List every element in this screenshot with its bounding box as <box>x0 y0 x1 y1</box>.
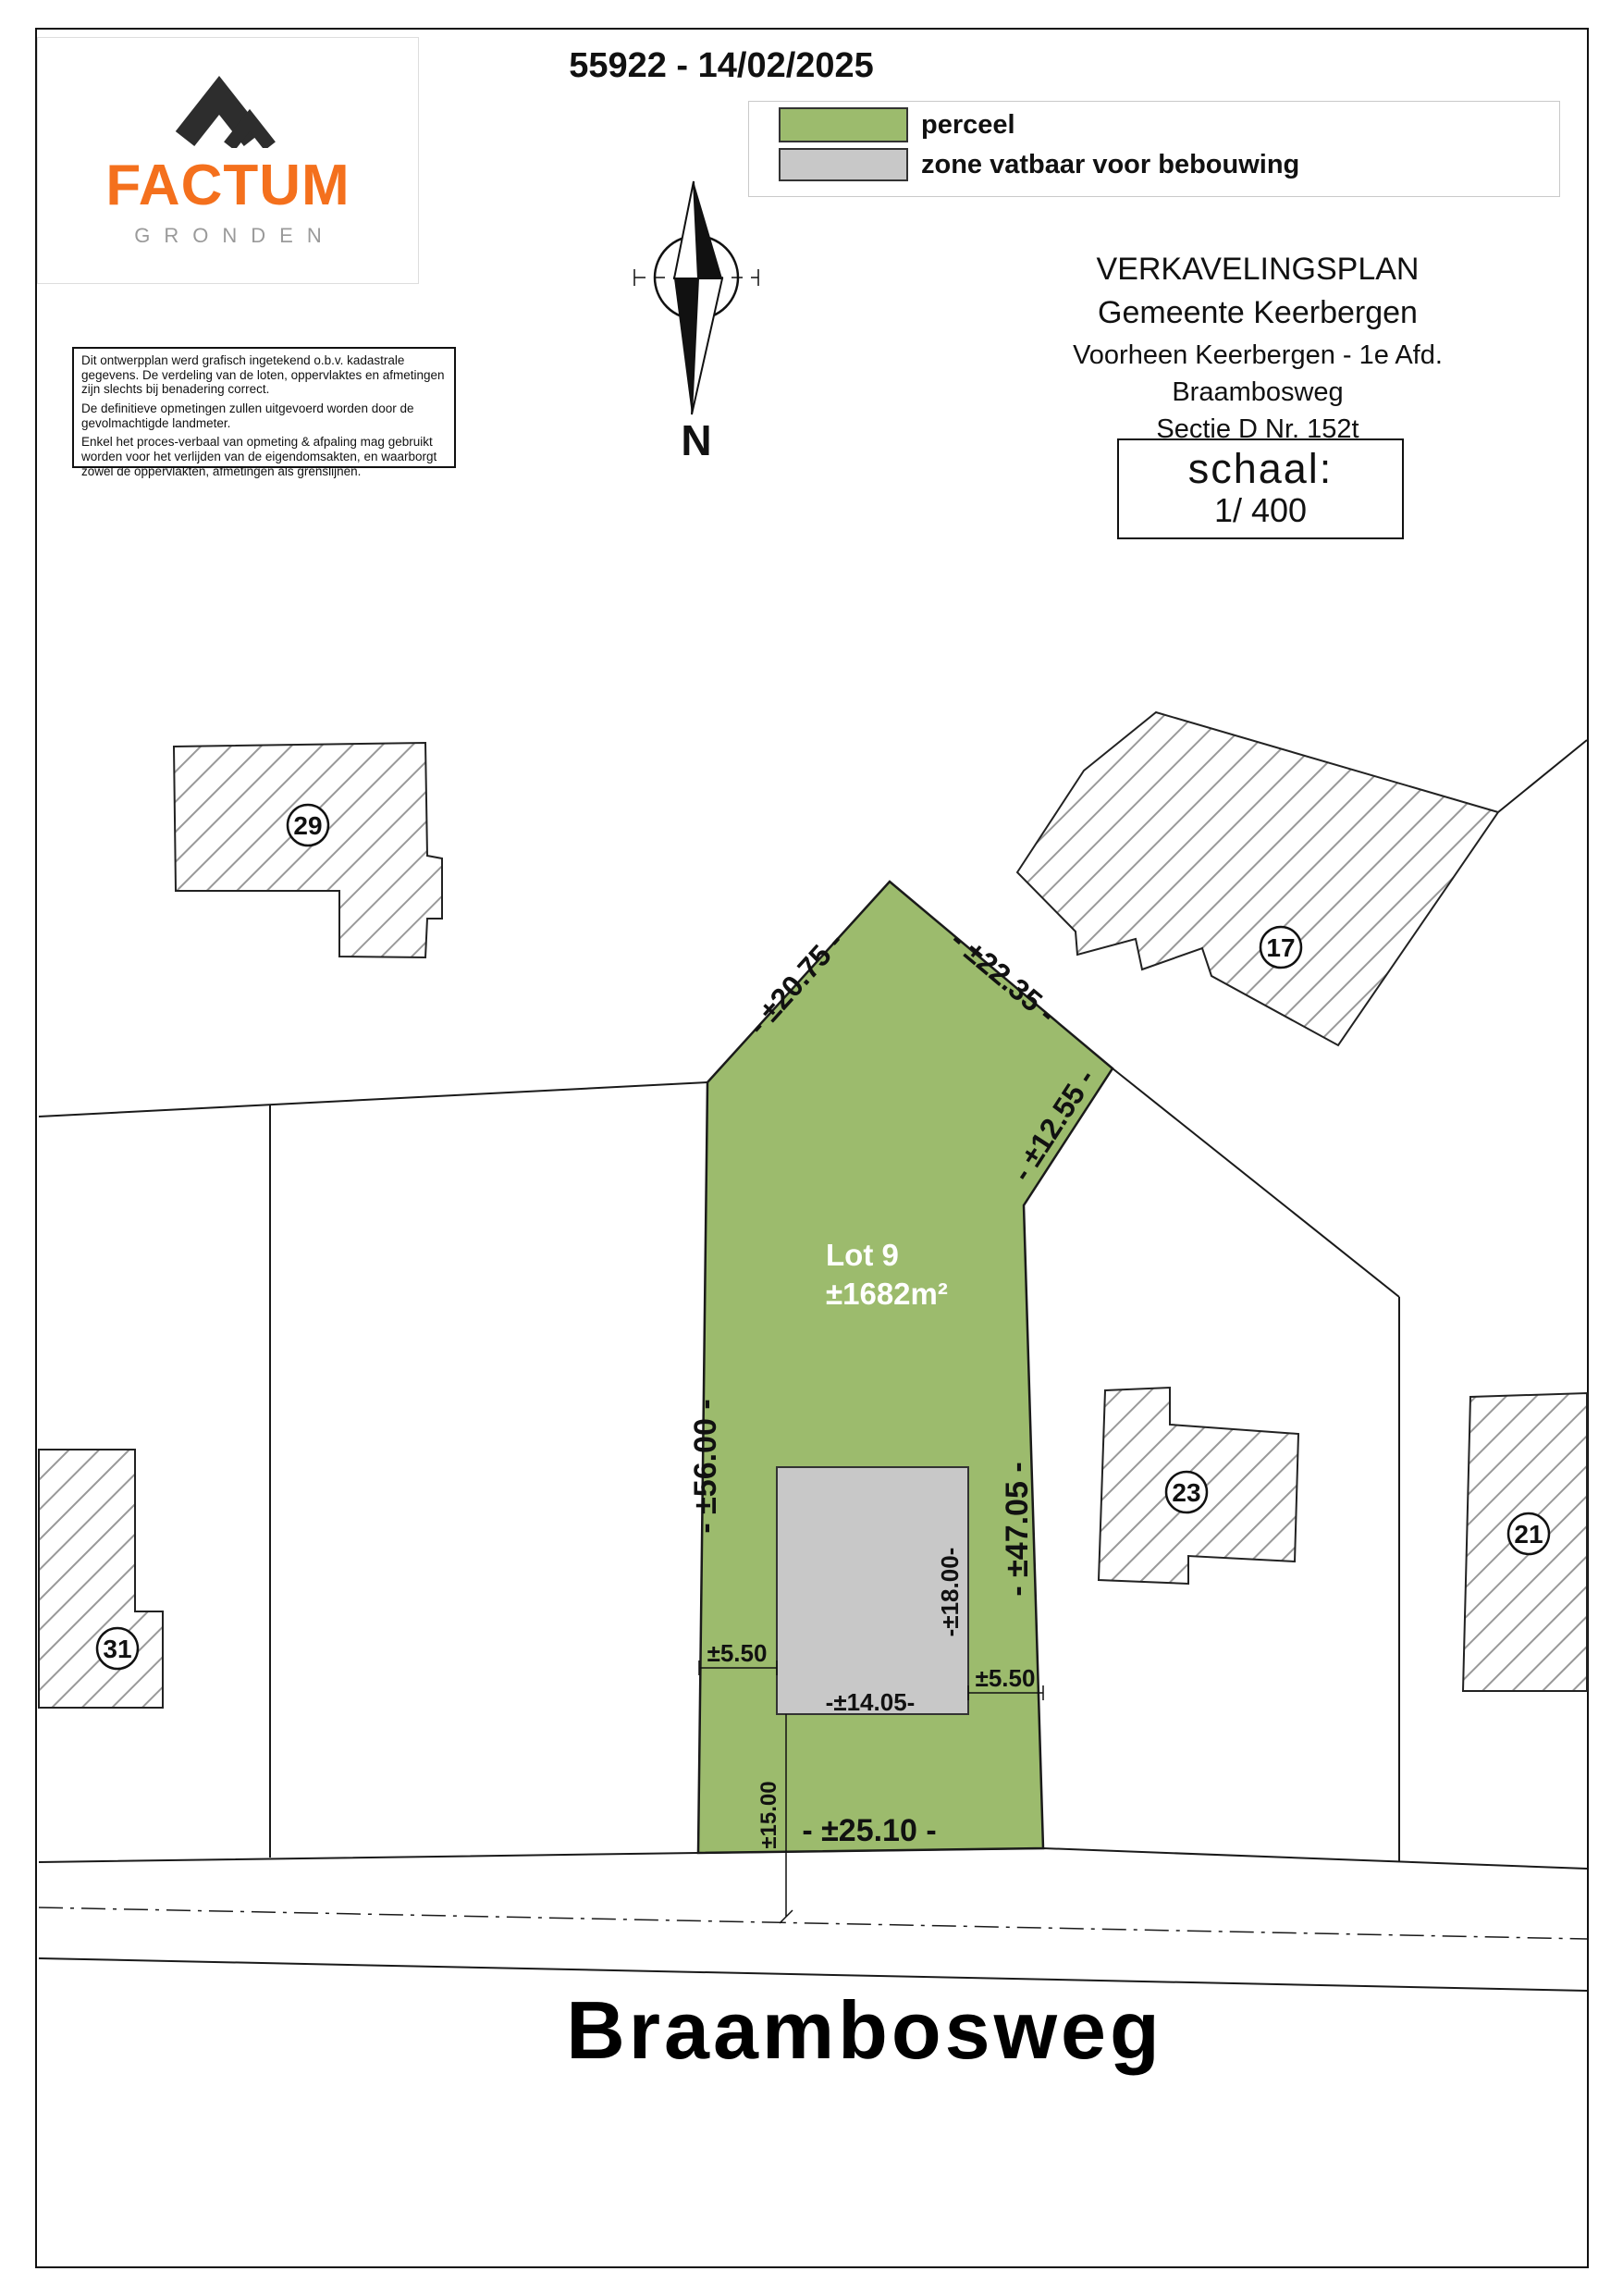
disclaimer-box: Dit ontwerpplan werd grafisch ingetekend… <box>72 347 456 468</box>
north-label: N <box>681 416 711 464</box>
zone-label: zone vatbaar voor bebouwing <box>921 152 1299 179</box>
building-17 <box>1017 712 1498 1045</box>
document-reference: 55922 - 14/02/2025 <box>499 46 943 86</box>
lot-name-label: Lot 9 <box>826 1238 899 1272</box>
disclaimer-paragraph-2: De definitieve opmetingen zullen uitgevo… <box>81 401 447 430</box>
municipality: Gemeente Keerbergen <box>1017 295 1498 331</box>
dim-street-frontage: - ±25.10 - <box>802 1813 936 1848</box>
title-block: VERKAVELINGSPLAN Gemeente Keerbergen Voo… <box>1017 252 1498 451</box>
building-31 <box>39 1450 163 1708</box>
zone-color-swatch <box>779 148 908 181</box>
dim-zone-width: -±14.05- <box>826 1688 916 1716</box>
legend-row-zone: zone vatbaar voor bebouwing <box>779 148 1559 181</box>
neighbor-23-label: 23 <box>1172 1478 1200 1507</box>
scale-label: schaal: <box>1119 446 1402 492</box>
neighbor-31-label: 31 <box>103 1635 131 1663</box>
perceel-color-swatch <box>779 107 908 142</box>
dim-zone-depth: -±18.00- <box>936 1548 964 1637</box>
dim-side-setback-left: ±5.50 <box>707 1639 768 1667</box>
factum-logo-card: FACTUM GRONDEN <box>37 37 419 284</box>
scale-box: schaal: 1/ 400 <box>1117 438 1404 539</box>
neighbor-17-label: 17 <box>1266 933 1295 962</box>
road-centerline <box>39 1907 1587 1939</box>
formerly: Voorheen Keerbergen - 1e Afd. <box>1017 340 1498 371</box>
lot-area-label: ±1682m² <box>826 1277 948 1311</box>
logo-brand-text: FACTUM <box>105 157 350 215</box>
neighbor-29-label: 29 <box>293 811 322 840</box>
perceel-label: perceel <box>921 112 1015 139</box>
disclaimer-paragraph-1: Dit ontwerpplan werd grafisch ingetekend… <box>81 353 447 397</box>
legend-row-perceel: perceel <box>779 107 1559 142</box>
street: Braambosweg <box>1017 377 1498 408</box>
logo-subtitle-text: GRONDEN <box>120 224 335 248</box>
legend: perceel zone vatbaar voor bebouwing <box>748 101 1560 197</box>
factum-logo-icon <box>168 74 289 148</box>
dim-right-edge: - ±47.05 - <box>1000 1462 1035 1596</box>
dim-front-setback: ±15.00 <box>756 1781 781 1848</box>
road-braambosweg <box>39 1848 1587 1991</box>
plan-title: VERKAVELINGSPLAN <box>1017 252 1498 288</box>
scale-value: 1/ 400 <box>1119 492 1402 529</box>
street-name-label: Braambosweg <box>566 1984 1163 2076</box>
compass: N <box>634 181 758 464</box>
disclaimer-paragraph-3: Enkel het proces-verbaal van opmeting & … <box>81 435 447 478</box>
dim-left-edge: - ±56.00 - <box>688 1399 723 1533</box>
neighbor-21-label: 21 <box>1514 1520 1543 1549</box>
dim-side-setback-right: ±5.50 <box>976 1664 1036 1692</box>
verkavelingsplan-page: - ±20.75 - - ±22.35 - - ±12.55 - - ±56.0… <box>0 0 1623 2296</box>
building-29 <box>174 743 442 957</box>
